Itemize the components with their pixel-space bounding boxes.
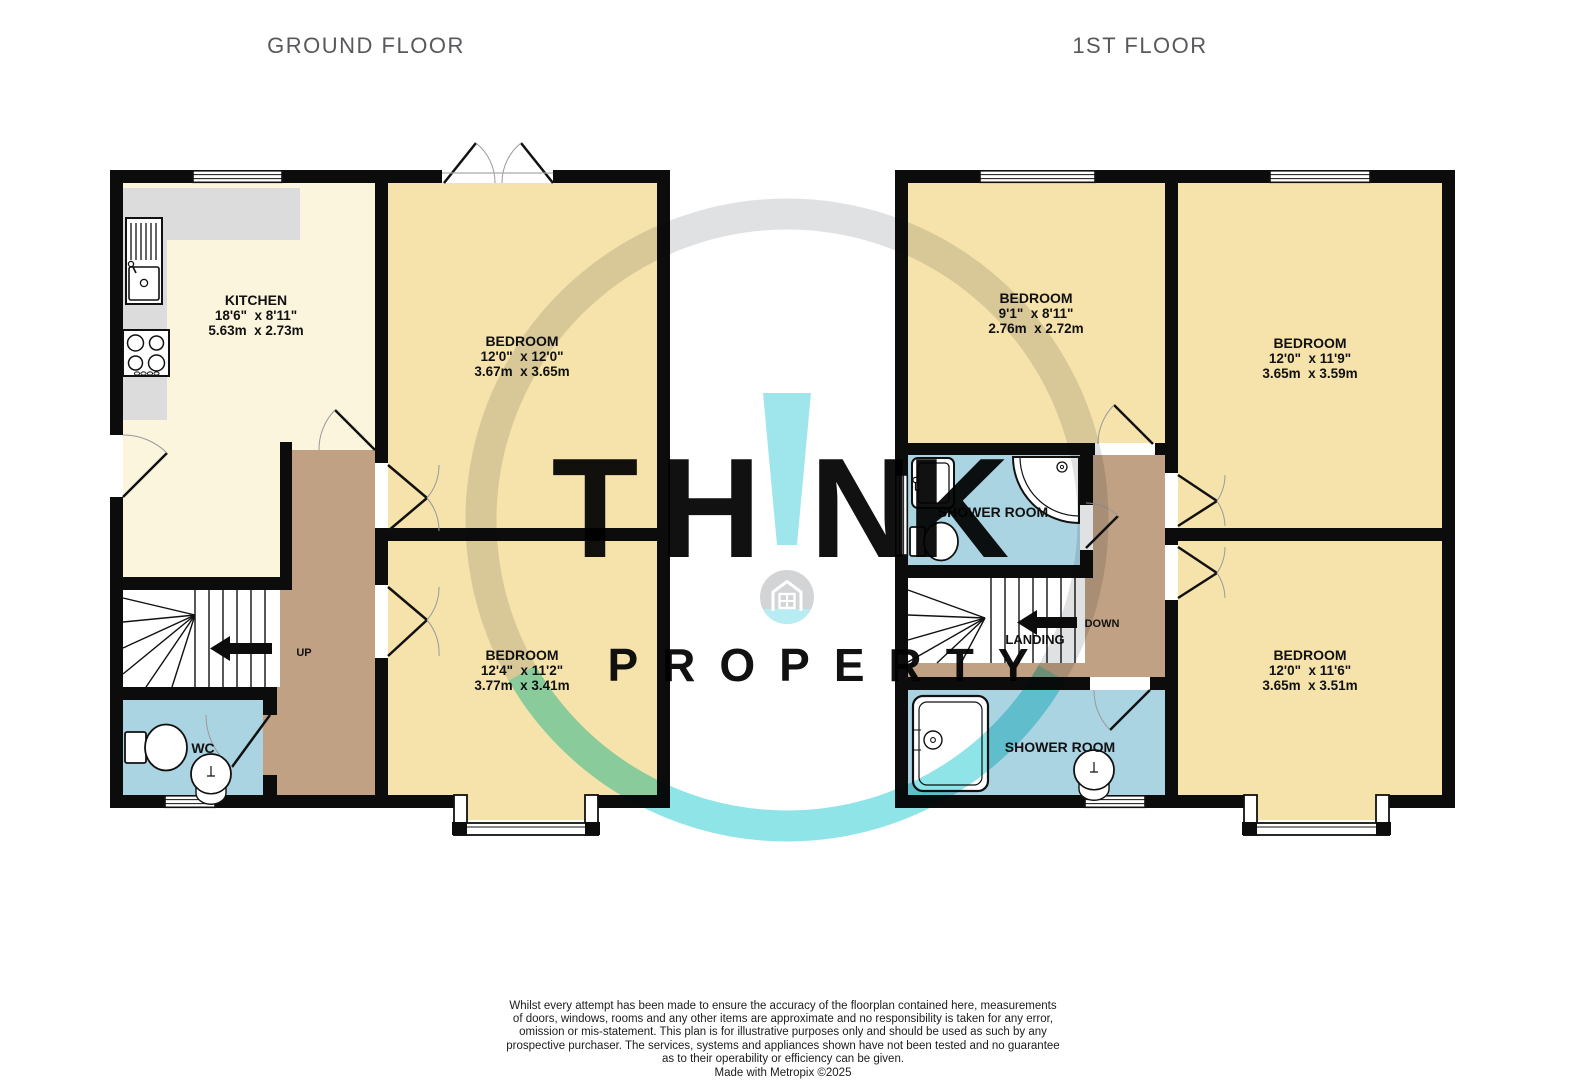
svg-text:H: H xyxy=(659,429,762,588)
stove-icon xyxy=(123,330,169,376)
bedroom-small-window xyxy=(980,171,1095,183)
disclaimer-line: Whilst every attempt has been made to en… xyxy=(463,1000,1103,1013)
bedroom-bottom-label: BEDROOM xyxy=(1273,647,1346,663)
svg-text:3.67m x 3.65m: 3.67m x 3.65m xyxy=(474,364,569,379)
disclaimer-line: omission or mis-statement. This plan is … xyxy=(463,1026,1103,1039)
watermark-house-icon xyxy=(760,570,814,624)
hallway-floor xyxy=(292,450,375,795)
kitchen-label: KITCHEN xyxy=(225,292,287,308)
svg-text:12'0" x 11'6": 12'0" x 11'6" xyxy=(1269,663,1351,678)
disclaimer-line: of doors, windows, rooms and any other i… xyxy=(463,1013,1103,1026)
shower-room-bottom-label: SHOWER ROOM xyxy=(1005,739,1115,755)
bedroom-bottom-label: BEDROOM xyxy=(485,647,558,663)
svg-text:18'6" x 8'11": 18'6" x 8'11" xyxy=(215,308,297,323)
first-floor-title: 1ST FLOOR xyxy=(1072,33,1207,59)
toilet-icon xyxy=(125,725,187,771)
landing-floor xyxy=(1093,455,1165,677)
wc-label: WC xyxy=(191,740,214,756)
ground-room-fills xyxy=(123,183,657,820)
toilet-icon-mid xyxy=(910,523,958,561)
ground-floor-title: GROUND FLOOR xyxy=(267,33,465,59)
svg-text:12'0" x 11'9": 12'0" x 11'9" xyxy=(1269,351,1351,366)
bedroom-top-label: BEDROOM xyxy=(485,333,558,349)
kitchen-sink-icon xyxy=(126,218,162,304)
basin-icon-bottom xyxy=(1074,750,1114,800)
ground-floor-plan: KITCHEN 18'6" x 8'11" 5.63m x 2.73m BEDR… xyxy=(110,125,670,850)
watermark-exclamation-icon xyxy=(763,393,811,545)
first-floor-plan: BEDROOM 9'1" x 8'11" 2.76m x 2.72m BEDRO… xyxy=(895,125,1455,850)
svg-text:3.65m x 3.51m: 3.65m x 3.51m xyxy=(1262,678,1357,693)
wall-basin-icon xyxy=(912,458,954,508)
shower-room-mid-label: SHOWER ROOM xyxy=(938,504,1048,520)
svg-text:12'4" x 11'2": 12'4" x 11'2" xyxy=(481,663,563,678)
down-label: DOWN xyxy=(1085,618,1120,630)
disclaimer-text: Whilst every attempt has been made to en… xyxy=(463,1000,1103,1080)
bedroom-top-label: BEDROOM xyxy=(1273,335,1346,351)
french-doors xyxy=(442,143,553,183)
floorplan-page: GROUND FLOOR 1ST FLOOR xyxy=(0,0,1576,1080)
svg-text:3.77m x 3.41m: 3.77m x 3.41m xyxy=(474,678,569,693)
kitchen-window xyxy=(193,171,282,183)
disclaimer-line: prospective purchaser. The services, sys… xyxy=(463,1040,1103,1053)
svg-text:3.65m x 3.59m: 3.65m x 3.59m xyxy=(1262,366,1357,381)
stairs-floor xyxy=(123,590,280,687)
disclaimer-line: as to their operability or efficiency ca… xyxy=(463,1053,1103,1066)
bedroom-top-window xyxy=(1270,171,1370,183)
svg-text:12'0" x 12'0": 12'0" x 12'0" xyxy=(480,349,563,364)
svg-text:9'1" x 8'11": 9'1" x 8'11" xyxy=(999,306,1074,321)
svg-text:2.76m x 2.72m: 2.76m x 2.72m xyxy=(988,321,1083,336)
metropix-credit: Made with Metropix ©2025 xyxy=(463,1067,1103,1080)
landing-label: LANDING xyxy=(1005,632,1064,647)
svg-text:5.63m x 2.73m: 5.63m x 2.73m xyxy=(208,323,303,338)
wc-basin-icon xyxy=(191,754,231,804)
up-label: UP xyxy=(296,647,311,659)
shower-tray-icon xyxy=(913,696,988,791)
bedroom-small-label: BEDROOM xyxy=(999,290,1072,306)
shower-mid-window xyxy=(896,475,908,555)
